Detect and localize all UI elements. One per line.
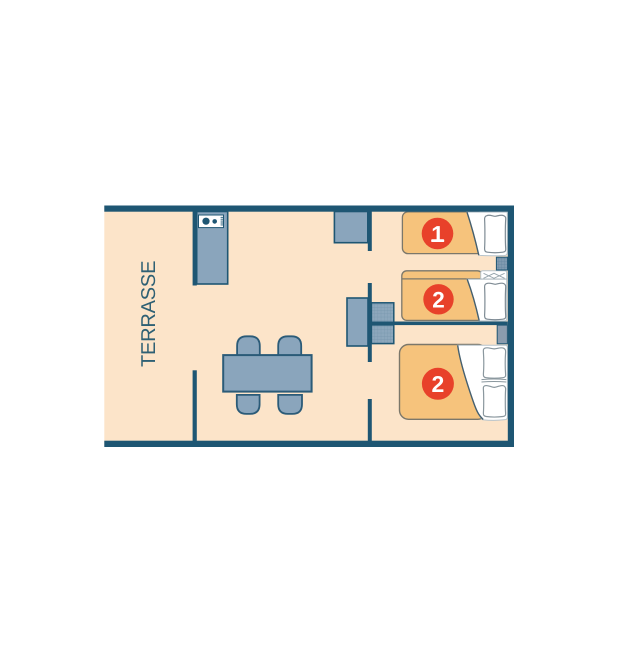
svg-text:1: 1 xyxy=(431,221,444,247)
svg-text:2: 2 xyxy=(432,288,445,313)
svg-text:2: 2 xyxy=(432,371,445,397)
svg-text:TERRASSE: TERRASSE xyxy=(138,261,160,367)
